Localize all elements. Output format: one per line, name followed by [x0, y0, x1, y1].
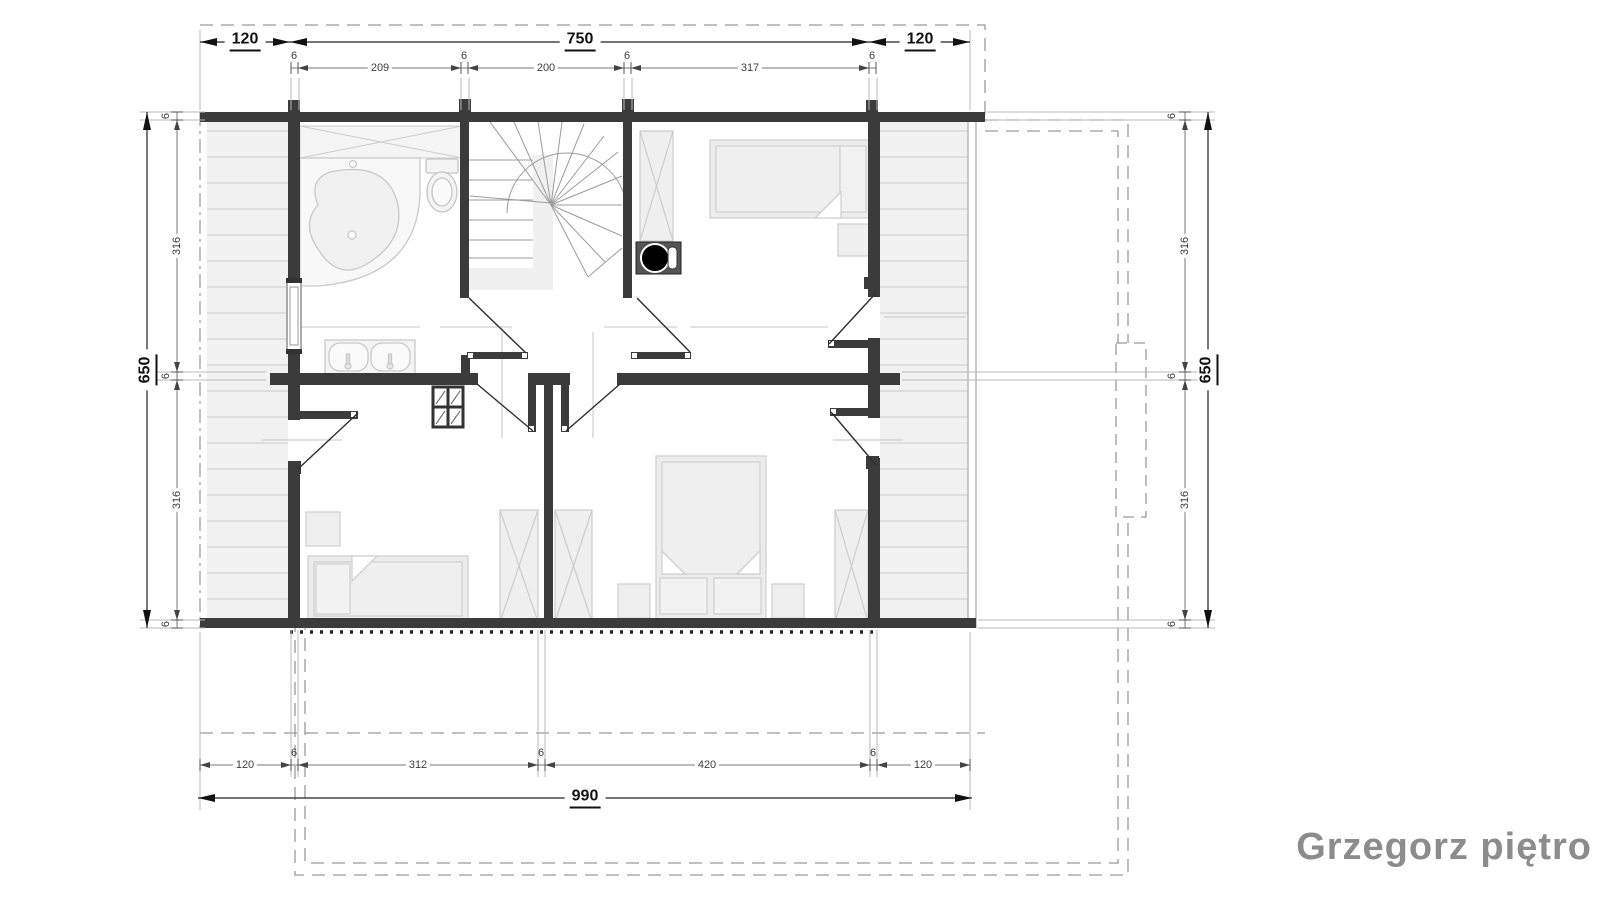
dim-top-sub-209: 209: [368, 62, 392, 74]
dim-bottom-120-right: 120: [911, 759, 935, 771]
dim-top-120-left: 120: [225, 31, 266, 52]
window: [286, 278, 302, 354]
double-bed-bottom-right: [656, 456, 766, 620]
dim-right-sub-316a: 316: [1179, 234, 1191, 258]
dim-left-sub-316b: 316: [171, 488, 183, 512]
floor-plan-canvas: 120 750 120 6 209 6 200 6 317 6 650 6 31…: [0, 0, 1600, 900]
chimney-outline: [1116, 343, 1146, 517]
wardrobe: [555, 510, 592, 622]
dim-right-sub-316b: 316: [1179, 488, 1191, 512]
dim-bottom-312: 312: [406, 759, 430, 771]
dim-bottom-990: 990: [565, 788, 606, 809]
dim-left-sub-6b: 6: [160, 373, 172, 379]
nightstand: [772, 584, 804, 618]
dim-bottom-6a: 6: [291, 747, 297, 759]
wardrobe: [500, 510, 538, 622]
toilet: [426, 159, 458, 212]
dim-right-sub-6b: 6: [1166, 373, 1178, 379]
wardrobe: [835, 510, 868, 622]
dim-right-sub-6c: 6: [1166, 621, 1178, 627]
dim-left-sub-6c: 6: [160, 621, 172, 627]
nightstand: [306, 512, 340, 546]
dim-bottom-6b: 6: [538, 747, 544, 759]
wardrobe: [640, 131, 673, 241]
low-headroom-zone: [300, 126, 462, 158]
corner-bathtub: [300, 158, 420, 286]
dim-bottom-6c: 6: [870, 747, 876, 759]
dim-left-sub-6a: 6: [160, 113, 172, 119]
dim-left-650: 650: [137, 350, 158, 391]
double-sink: [325, 340, 415, 374]
dim-top-750: 750: [560, 31, 601, 52]
wood-stove-icon: [636, 242, 681, 274]
single-bed-bottom-left: [308, 556, 468, 622]
nightstand: [838, 224, 872, 256]
dim-top-sub-317: 317: [738, 62, 762, 74]
dim-right-sub-6a: 6: [1166, 113, 1178, 119]
stair-winder: [468, 122, 627, 290]
deck-right: [880, 112, 976, 628]
dim-bottom-120-left: 120: [233, 759, 257, 771]
plan-title: Grzegorz piętro: [1140, 826, 1592, 869]
dim-top-120-right: 120: [900, 31, 941, 52]
dim-top-sub-200: 200: [534, 62, 558, 74]
dim-top-sub-6c: 6: [624, 50, 630, 62]
dim-top-sub-6a: 6: [291, 50, 297, 62]
dim-right-650: 650: [1198, 350, 1219, 391]
nightstand: [618, 584, 650, 618]
dim-top-sub-6d: 6: [869, 50, 875, 62]
dim-top-sub-6b: 6: [461, 50, 467, 62]
dim-left-sub-316a: 316: [171, 234, 183, 258]
single-bed-top-right: [710, 140, 873, 218]
deck-left: [200, 112, 288, 628]
dim-bottom-420: 420: [695, 759, 719, 771]
glazed-cabinet: [433, 387, 463, 427]
